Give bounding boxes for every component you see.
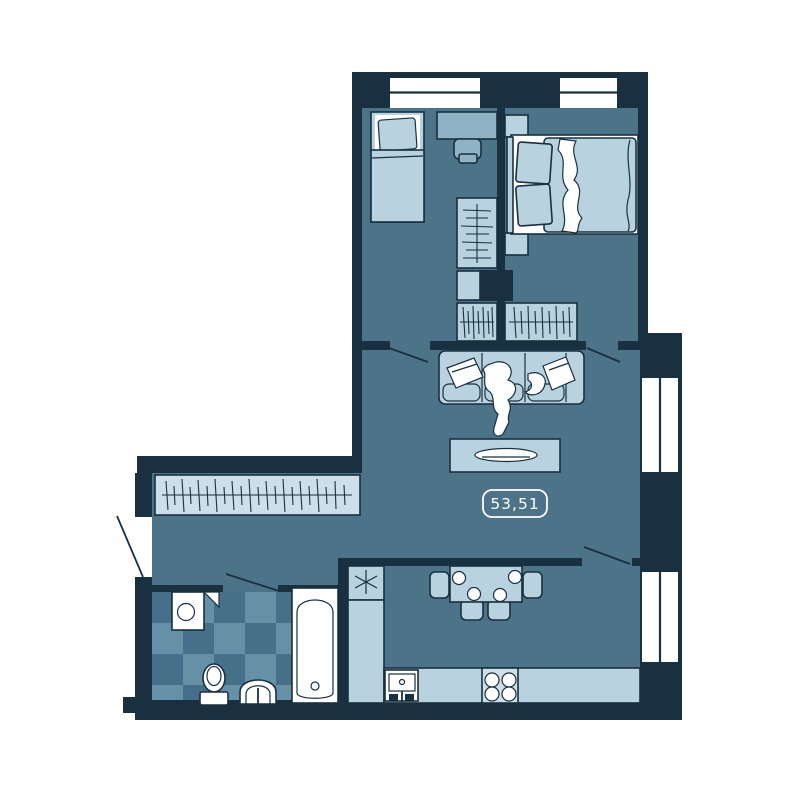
nightstand-bottom bbox=[505, 233, 528, 255]
dining-chair-bottom-left bbox=[461, 600, 483, 620]
apartment-floor-plan: 53,51 bbox=[0, 0, 800, 800]
wall-hallway-top bbox=[137, 456, 362, 473]
wall-bathroom-kitchen-divider bbox=[338, 558, 348, 700]
desk-chair bbox=[454, 139, 481, 163]
bathtub-drain bbox=[311, 682, 319, 690]
bathtub bbox=[292, 588, 338, 703]
burner bbox=[485, 673, 499, 687]
toilet bbox=[200, 664, 228, 705]
plate bbox=[468, 588, 481, 601]
nightstand-top bbox=[505, 115, 528, 137]
wardrobe-small-bedroom bbox=[457, 198, 497, 268]
burner bbox=[502, 687, 516, 701]
window-top-left bbox=[390, 78, 480, 108]
area-label: 53,51 bbox=[483, 490, 547, 517]
dining-chair-bottom-right bbox=[488, 600, 510, 620]
hallway-wardrobe bbox=[155, 475, 360, 515]
single-bed bbox=[371, 112, 424, 222]
fridge bbox=[348, 566, 384, 600]
wall-kitchen-top bbox=[348, 558, 582, 566]
floor-plan-canvas: 53,51 bbox=[0, 0, 800, 800]
plate bbox=[509, 571, 522, 584]
kitchen-sink bbox=[385, 670, 418, 702]
serving-tray bbox=[475, 449, 537, 462]
wardrobe-hatched-left bbox=[457, 303, 497, 341]
wall-bathroom-top-left bbox=[152, 585, 223, 592]
doorway-bedroom-small bbox=[390, 341, 430, 350]
window-top-right bbox=[560, 78, 617, 108]
cabinet-small-bedroom bbox=[457, 271, 480, 300]
wall-bottom-left-step bbox=[123, 697, 152, 713]
plate bbox=[453, 572, 466, 585]
coffee-table bbox=[450, 439, 560, 472]
wall-left-above-entry bbox=[135, 473, 152, 517]
wall-left-upper bbox=[352, 338, 362, 473]
wardrobe-hatched-right bbox=[505, 303, 577, 341]
burner bbox=[485, 687, 499, 701]
window-right-upper bbox=[642, 378, 678, 472]
wall-kitchen-top-right bbox=[632, 558, 640, 566]
plate bbox=[494, 589, 507, 602]
wall-left-below-entry bbox=[135, 577, 152, 718]
burner bbox=[502, 673, 516, 687]
washing-machine-drum bbox=[178, 604, 195, 621]
dining-chair-left bbox=[430, 572, 449, 598]
window-right-lower bbox=[642, 572, 678, 662]
stove bbox=[482, 668, 518, 703]
bathroom-sink bbox=[240, 680, 276, 705]
desk bbox=[437, 112, 497, 139]
kitchen-counter-left bbox=[348, 600, 384, 703]
wall-partition-chunk bbox=[480, 270, 513, 301]
entry-door-swing-line bbox=[117, 516, 143, 577]
area-label-text: 53,51 bbox=[490, 495, 539, 513]
dining-chair-right bbox=[523, 572, 542, 598]
double-bed bbox=[507, 135, 638, 234]
